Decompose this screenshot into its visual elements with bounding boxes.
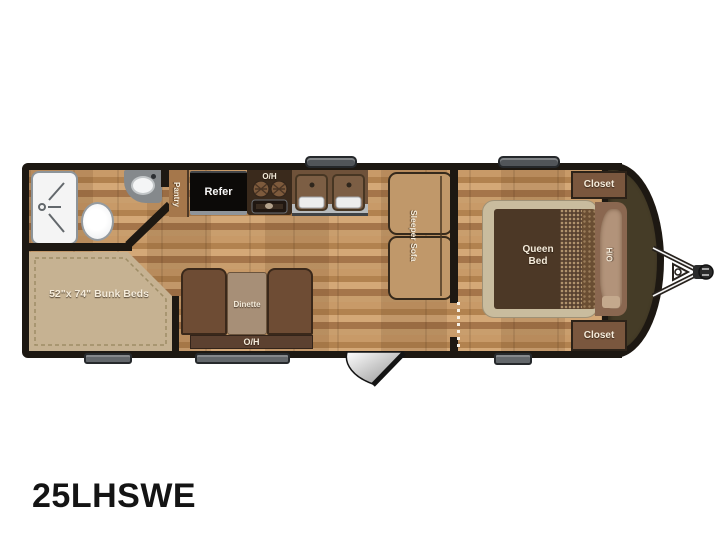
entry-step-icon xyxy=(494,353,532,365)
sink-basin xyxy=(131,176,155,195)
closet-front-bottom: Closet xyxy=(571,320,627,351)
stove-burners-icon xyxy=(247,181,292,215)
bedroom-wall xyxy=(450,167,458,303)
dinette-overhead-label: O/H xyxy=(243,337,259,347)
roof-vent-icon xyxy=(305,156,357,168)
bunk-bed-area xyxy=(29,252,172,351)
refer-label: Refer xyxy=(204,186,232,199)
bathroom-wall xyxy=(161,170,169,187)
queen-bed-label-line2: Bed xyxy=(494,256,582,268)
sofa-label: Sleeper Sofa xyxy=(408,178,418,294)
entry-door-swing-icon xyxy=(343,350,407,388)
closet-top-label: Closet xyxy=(584,179,615,191)
floorplan-model-label: 25LHSWE xyxy=(32,477,196,516)
sofa-cushion xyxy=(388,172,453,235)
dinette-bench xyxy=(181,268,227,335)
pantry-label: Pantry xyxy=(172,173,181,215)
sofa-back-seam xyxy=(440,176,442,296)
dinette-bench xyxy=(267,268,313,335)
shower-icon xyxy=(31,171,78,245)
dinette-overhead-cabinet: O/H xyxy=(190,335,313,349)
bunk-label: 52"x 74" Bunk Beds xyxy=(33,288,165,300)
bunk-wall xyxy=(172,296,179,351)
closet-front-top: Closet xyxy=(571,171,627,199)
faucet-icon xyxy=(151,174,156,179)
kitchen-sink-icon xyxy=(292,170,368,216)
privacy-curtain-line xyxy=(457,302,460,348)
refrigerator: Refer xyxy=(190,171,247,215)
floorplan-canvas: Pantry Refer O/H 52"x 74" Bunk Beds Dine… xyxy=(0,0,720,540)
bed-headboard-shelf xyxy=(602,296,620,308)
kitchen-overhead-label: O/H xyxy=(247,172,292,181)
queen-bed-label-line1: Queen xyxy=(494,244,582,256)
bed-overhead-label: O/H xyxy=(605,242,614,268)
dinette-label: Dinette xyxy=(223,300,271,309)
toilet-icon xyxy=(81,202,114,241)
sofa-cushion xyxy=(388,236,453,300)
queen-bed-label: Queen Bed xyxy=(494,244,582,267)
hitch-icon xyxy=(645,232,715,312)
entry-step-icon xyxy=(195,353,290,364)
roof-vent-icon xyxy=(498,156,560,168)
bathroom-wall xyxy=(29,243,132,251)
closet-bottom-label: Closet xyxy=(584,330,615,342)
entry-step-icon xyxy=(84,353,132,364)
